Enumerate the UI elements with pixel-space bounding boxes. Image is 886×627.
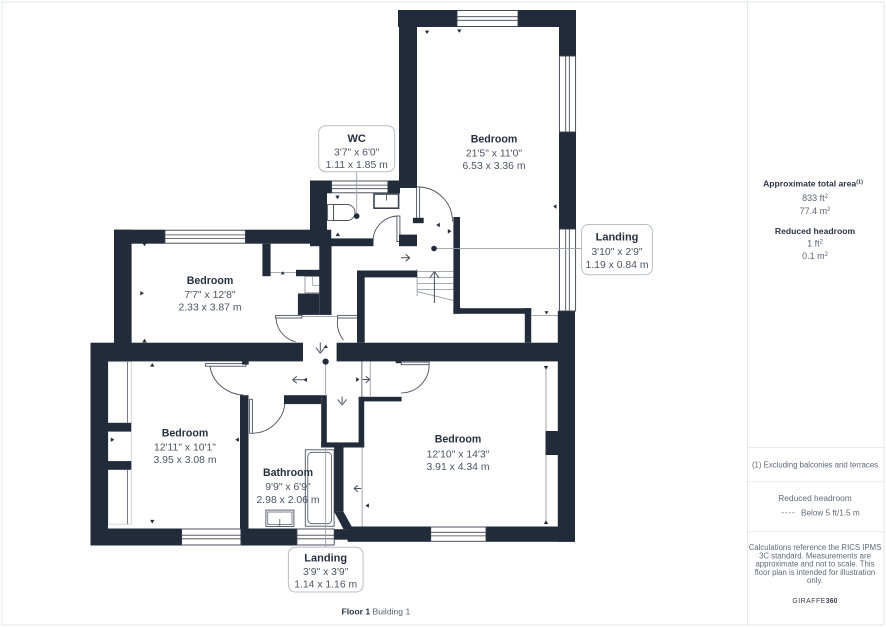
svg-text:only.: only. — [807, 576, 823, 585]
svg-text:Reduced headroom: Reduced headroom — [775, 226, 856, 236]
svg-text:Floor 1: Floor 1 — [342, 607, 371, 617]
svg-text:Building 1: Building 1 — [373, 607, 411, 617]
svg-text:3'10" x 2'9": 3'10" x 2'9" — [591, 247, 643, 258]
svg-text:3'7" x 6'0": 3'7" x 6'0" — [334, 148, 380, 159]
svg-text:1.19 x 0.84 m: 1.19 x 0.84 m — [586, 260, 649, 271]
svg-text:6.53 x 3.36 m: 6.53 x 3.36 m — [463, 161, 526, 172]
svg-text:1.14 x 1.16 m: 1.14 x 1.16 m — [294, 579, 357, 590]
svg-text:Bedroom: Bedroom — [435, 434, 482, 446]
svg-text:2.98 x 2.06 m: 2.98 x 2.06 m — [257, 495, 320, 506]
svg-text:Landing: Landing — [304, 553, 347, 565]
svg-text:1.11 x 1.85 m: 1.11 x 1.85 m — [326, 160, 388, 171]
svg-text:12'10" x 14'3": 12'10" x 14'3" — [427, 450, 490, 461]
svg-text:3.91 x 4.34 m: 3.91 x 4.34 m — [427, 462, 490, 473]
svg-text:Bedroom: Bedroom — [471, 134, 518, 146]
svg-text:Approximate total area(1): Approximate total area(1) — [763, 179, 863, 189]
svg-text:12'11" x 10'1": 12'11" x 10'1" — [154, 443, 216, 454]
svg-text:Below 5 ft/1.5 m: Below 5 ft/1.5 m — [801, 509, 860, 518]
svg-text:77.4 m2: 77.4 m2 — [800, 206, 832, 216]
svg-text:GIRAFFE360: GIRAFFE360 — [792, 598, 837, 605]
svg-text:7'7" x 12'8": 7'7" x 12'8" — [184, 290, 236, 301]
svg-text:2.33 x 3.87 m: 2.33 x 3.87 m — [179, 303, 242, 314]
svg-text:3'9" x 3'9": 3'9" x 3'9" — [303, 567, 349, 578]
svg-text:9'9" x 6'9": 9'9" x 6'9" — [265, 482, 311, 493]
svg-text:Bedroom: Bedroom — [162, 428, 209, 440]
svg-text:Bedroom: Bedroom — [187, 275, 234, 287]
svg-text:Landing: Landing — [596, 232, 639, 244]
svg-text:3.95 x 3.08 m: 3.95 x 3.08 m — [154, 455, 217, 466]
svg-text:21'5" x 11'0": 21'5" x 11'0" — [466, 149, 523, 160]
svg-text:Bathroom: Bathroom — [263, 467, 313, 479]
svg-text:WC: WC — [348, 133, 366, 145]
svg-text:Reduced headroom: Reduced headroom — [778, 493, 852, 503]
svg-text:(1) Excluding balconies and te: (1) Excluding balconies and terraces — [752, 461, 878, 470]
